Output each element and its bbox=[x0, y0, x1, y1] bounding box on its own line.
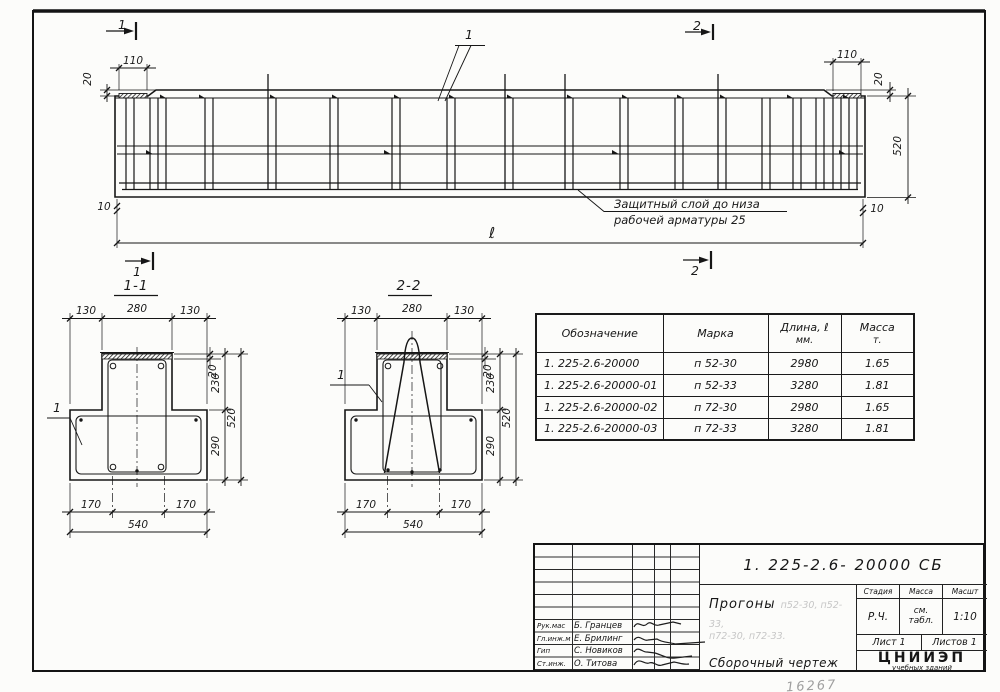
col-header-mark: Марка bbox=[663, 314, 768, 352]
dim-label: 130 bbox=[180, 305, 200, 317]
section-2-2: 2-2 1 130 280 130 20 230 290 520 bbox=[330, 278, 523, 538]
flange-stirrup bbox=[76, 416, 201, 474]
section-mark-1-top: 1 bbox=[118, 17, 126, 32]
cell-mark: п 72-33 bbox=[663, 418, 768, 440]
longitudinal-bars bbox=[115, 98, 865, 190]
cell-designation: 1. 225-2.6-20000 bbox=[536, 352, 663, 374]
tall-bars bbox=[268, 74, 718, 190]
flange-stirrup bbox=[351, 416, 476, 474]
dim-label: 230 bbox=[210, 373, 222, 393]
role-name: Е. Брилинг bbox=[574, 634, 631, 645]
bar-sections bbox=[385, 363, 443, 369]
table-row: 1. 225-2.6-20000-01 п 52-33 3280 1.81 bbox=[536, 374, 914, 396]
bar-dots bbox=[354, 418, 472, 473]
product-name: Прогоны bbox=[709, 597, 776, 612]
organization-cell: ЦНИИЭП учебных зданий г. Москва bbox=[857, 651, 987, 670]
handwritten-margin-note: 16267 bbox=[786, 678, 838, 692]
section-title: 2-2 bbox=[396, 278, 421, 294]
stage-label: Стадия bbox=[857, 585, 900, 599]
bearing-pad-left bbox=[119, 94, 147, 99]
dim-label: 290 bbox=[485, 436, 497, 456]
cell-mass: 1.65 bbox=[841, 352, 914, 374]
hook-marks-mid bbox=[146, 150, 845, 154]
stirrup-bars bbox=[126, 98, 857, 190]
cell-length: 2980 bbox=[768, 352, 841, 374]
col-header-designation: Обозначение bbox=[536, 314, 663, 352]
grid-line bbox=[632, 545, 633, 670]
role-label: Ст.инж. bbox=[537, 659, 571, 670]
document-designation: 1. 225-2.6- 20000 СБ bbox=[700, 545, 987, 585]
cell-designation: 1. 225-2.6-20000-02 bbox=[536, 396, 663, 418]
table-row: 1. 225-2.6-20000 п 52-30 2980 1.65 bbox=[536, 352, 914, 374]
mass-value-line1: см. bbox=[900, 606, 942, 616]
section-1-1: 1-1 1 130 280 130 20 230 290 520 bbox=[47, 278, 248, 538]
dim-label: 280 bbox=[402, 303, 422, 315]
title-block-approval-grid: Рук.мас Б. Гранцев Гл.инж.м Е. Брилинг Г… bbox=[535, 545, 700, 670]
center-lines bbox=[113, 347, 165, 518]
callout-label: 1 bbox=[53, 400, 61, 415]
mass-value-line2: табл. bbox=[900, 616, 942, 626]
cell-mass: 1.65 bbox=[841, 396, 914, 418]
dim-label: 130 bbox=[454, 305, 474, 317]
table-header-row: Обозначение Марка Длина, ℓ мм. Масса т. bbox=[536, 314, 914, 352]
beam-elevation: 110 110 20 20 520 10 10 ℓ 1 2 1 2 1 Защ bbox=[82, 17, 916, 279]
section-title: 1-1 bbox=[123, 278, 148, 294]
drawing-sheet: 110 110 20 20 520 10 10 ℓ 1 2 1 2 1 Защ bbox=[0, 0, 1000, 692]
table-row: 1. 225-2.6-20000-02 п 72-30 2980 1.65 bbox=[536, 396, 914, 418]
cell-mass: 1.81 bbox=[841, 374, 914, 396]
section-mark-1-bottom: 1 bbox=[133, 264, 141, 279]
dim-label: 170 bbox=[81, 499, 101, 511]
col-header-mass-line2: т. bbox=[842, 335, 914, 346]
col-header-length-line1: Длина, ℓ bbox=[769, 321, 841, 334]
dim-label: 280 bbox=[127, 303, 147, 315]
role-name: О. Титова bbox=[574, 659, 631, 670]
grid-line bbox=[670, 545, 671, 670]
dim-label: 130 bbox=[76, 305, 96, 317]
mass-value: см. табл. bbox=[900, 599, 943, 635]
dim-label: 290 bbox=[210, 436, 222, 456]
section-mark-2-top: 2 bbox=[693, 18, 701, 33]
col-header-length: Длина, ℓ мм. bbox=[768, 314, 841, 352]
callout-label: 1 bbox=[465, 27, 473, 42]
dim-label: 10 bbox=[870, 203, 884, 215]
col-header-mass-line1: Масса bbox=[842, 321, 914, 334]
dimension-ticks bbox=[104, 59, 911, 246]
product-cell: Прогоны п52-30, п52-33, п72-30, п72-33. … bbox=[700, 585, 857, 670]
grid-line bbox=[654, 545, 655, 670]
section-mark-2-bottom: 2 bbox=[691, 263, 699, 278]
parts-table: Обозначение Марка Длина, ℓ мм. Масса т. … bbox=[535, 313, 915, 441]
dim-label: 170 bbox=[451, 499, 471, 511]
scale-label: Масшт bbox=[943, 585, 987, 599]
dim-label: 520 bbox=[226, 408, 238, 428]
stage-value: Р.Ч. bbox=[857, 599, 900, 635]
scale-value: 1:10 bbox=[943, 599, 987, 635]
section-cut-marks: 1 2 1 2 bbox=[106, 17, 713, 279]
organization-sub-1: учебных зданий bbox=[857, 665, 987, 670]
elevation-dimensions: 110 110 20 20 520 10 10 ℓ bbox=[82, 49, 916, 248]
dim-label: 20 bbox=[873, 72, 885, 86]
cell-mark: п 52-33 bbox=[663, 374, 768, 396]
mass-label: Масса bbox=[900, 585, 943, 599]
cell-designation: 1. 225-2.6-20000-03 bbox=[536, 418, 663, 440]
col-header-length-line2: мм. bbox=[769, 335, 841, 346]
cell-length: 2980 bbox=[768, 396, 841, 418]
dim-label: 520 bbox=[501, 408, 513, 428]
callout-label: 1 bbox=[337, 367, 345, 382]
dim-label: 10 bbox=[97, 201, 111, 213]
note-line-2: рабочей арматуры 25 bbox=[613, 213, 746, 227]
meta-grid: Стадия Масса Масшт Р.Ч. см. табл. 1:10 Л… bbox=[857, 585, 987, 670]
dim-label: 110 bbox=[123, 55, 143, 67]
cell-length: 3280 bbox=[768, 374, 841, 396]
bar-dots bbox=[79, 418, 197, 472]
role-label: Рук.мас bbox=[537, 621, 571, 632]
sheet-number: Лист 1 bbox=[857, 635, 922, 651]
dim-label: 540 bbox=[403, 519, 423, 531]
dim-label: 520 bbox=[892, 136, 904, 156]
title-block: Рук.мас Б. Гранцев Гл.инж.м Е. Брилинг Г… bbox=[533, 543, 985, 672]
role-label: Гип bbox=[537, 646, 571, 657]
note-line-1: Защитный слой до низа bbox=[614, 197, 760, 211]
col-header-mass: Масса т. bbox=[841, 314, 914, 352]
sheets-total: Листов 1 bbox=[922, 635, 987, 651]
grid-line bbox=[572, 545, 573, 670]
role-label: Гл.инж.м bbox=[537, 634, 571, 645]
dim-label: 540 bbox=[128, 519, 148, 531]
dim-label: 20 bbox=[82, 72, 94, 86]
dim-label: 130 bbox=[351, 305, 371, 317]
cell-length: 3280 bbox=[768, 418, 841, 440]
dim-label: 170 bbox=[356, 499, 376, 511]
table-row: 1. 225-2.6-20000-03 п 72-33 3280 1.81 bbox=[536, 418, 914, 440]
dim-label-length: ℓ bbox=[488, 224, 495, 242]
protective-layer-note: Защитный слой до низа рабочей арматуры 2… bbox=[578, 190, 787, 227]
faint-marks-2: п72-30, п72-33. bbox=[709, 631, 847, 642]
role-name: С. Новиков bbox=[574, 646, 631, 657]
cell-mass: 1.81 bbox=[841, 418, 914, 440]
document-type: Сборочный чертеж bbox=[709, 656, 847, 670]
cell-mark: п 52-30 bbox=[663, 352, 768, 374]
dim-label: 230 bbox=[485, 373, 497, 393]
dim-label: 170 bbox=[176, 499, 196, 511]
dim-label: 110 bbox=[837, 49, 857, 61]
cell-designation: 1. 225-2.6-20000-01 bbox=[536, 374, 663, 396]
cell-mark: п 72-30 bbox=[663, 396, 768, 418]
section-1-1-dimensions: 130 280 130 20 230 290 520 170 170 540 bbox=[62, 303, 248, 538]
role-name: Б. Гранцев bbox=[574, 621, 631, 632]
